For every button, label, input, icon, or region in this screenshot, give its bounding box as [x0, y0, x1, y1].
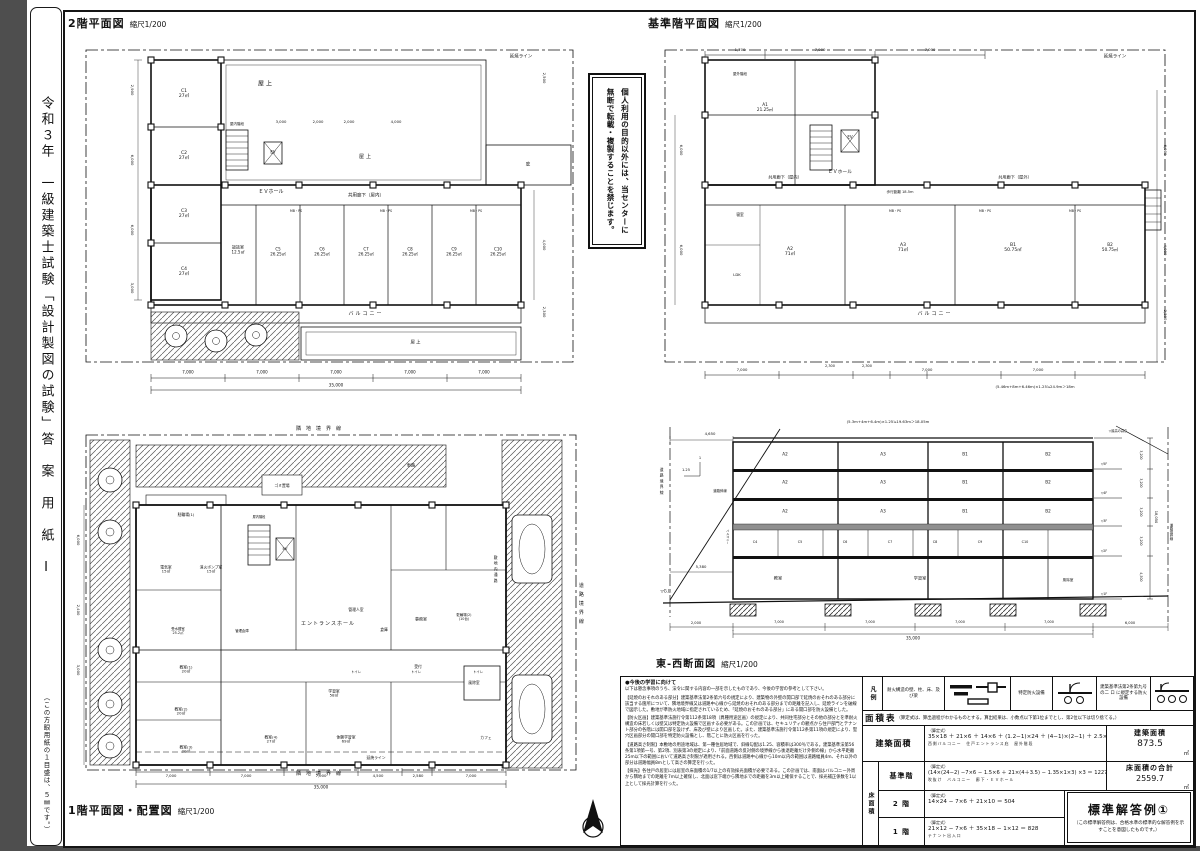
- drawing-label: 延焼ライン: [367, 756, 386, 760]
- section-scale: 縮尺1/200: [721, 660, 758, 669]
- drawing-label: 2,000: [344, 120, 355, 124]
- kijun-formula-annotation: 吹抜け バルコニー 廊下・ＥＶホール: [928, 777, 1103, 783]
- exam-answer-sheet: { "page": { "strip_title": "令和３年 一級建築士試験…: [0, 0, 1200, 851]
- drawing-label: MB・PS: [979, 210, 991, 214]
- drawing-label: 共用廊下（屋内）: [348, 193, 384, 198]
- drawing-label: 歩行距離 18.5m: [886, 190, 913, 194]
- drawing-label: 3,200: [1138, 536, 1142, 545]
- drawing-label: ▽最高の高さ: [1109, 430, 1127, 434]
- drawing-label: 教室: [774, 577, 782, 582]
- plan2f-title-text: 2階平面図: [68, 17, 125, 30]
- floor2-formula: 14×24 − 7×6 ＋ 21×10 ＝ 504: [928, 799, 1061, 806]
- drawing-label: 倉庫: [380, 628, 388, 632]
- drawing-label: 3,000: [276, 120, 287, 124]
- drawing-label: 6,000: [679, 145, 683, 156]
- drawing-label: B2: [1045, 481, 1051, 486]
- drawing-label: 庇: [526, 162, 531, 167]
- drawing-label: 屋内階段: [253, 516, 266, 520]
- drawing-label: ▽1F: [1101, 593, 1107, 597]
- notes-paragraph: 【延焼のおそれのある部分】建築基準法第2条第六号の規定により、建築物の外壁の開口…: [625, 696, 858, 714]
- drawing-label: 屋上: [411, 340, 422, 345]
- drawing-label: 6,000: [1125, 621, 1135, 625]
- drawing-label: エントランスホール: [301, 622, 355, 628]
- drawing-label: C10 26.25㎡: [490, 247, 505, 256]
- drawing-label: 教室(3) 20㎡: [180, 746, 193, 755]
- drawing-label: 7,000: [922, 368, 933, 372]
- drawing-label: A2: [782, 453, 788, 458]
- drawing-label: 7,000: [955, 621, 965, 625]
- drawing-label: 寝室: [736, 213, 744, 217]
- drawing-label: 道路境界線: [577, 583, 583, 628]
- floor-plan-1f-site: 隣地境界線隣地境界線道路境界線車路ゴミ置場駐輪場(1)電気室 15㎡消火ポンプ室…: [66, 420, 600, 798]
- drawing-label: バルコニー: [918, 312, 953, 318]
- kenchiku-result-unit: ㎡: [1183, 749, 1189, 757]
- drawing-label: トイレ: [473, 671, 483, 675]
- drawing-label: 事務室: [415, 618, 427, 623]
- drawing-label: 管理倉庫: [235, 630, 249, 634]
- drawing-label: ▽G.L.: [661, 590, 672, 595]
- drawing-label: 7,000: [256, 371, 267, 376]
- drawing-label: B2: [1045, 453, 1051, 458]
- legend-item2-text: 特定防火設備: [1018, 691, 1044, 697]
- floor-plan-standard-drawing: [645, 30, 1185, 408]
- drawing-label: C9: [978, 541, 983, 545]
- drawing-label: バルコニー: [349, 312, 384, 318]
- kenchiku-formula: 35×18 ＋ 21×6 ＋ 14×6 ＋ (1.2−1)×24 ＋ (4−1)…: [928, 734, 1103, 741]
- fire-shutter-icon: [1153, 681, 1191, 707]
- planstd-scale: 縮尺1/200: [725, 20, 762, 29]
- drawing-label: 屋上: [359, 155, 373, 161]
- planstd-title-text: 基準階平面図: [648, 17, 720, 30]
- drawing-label: 35,000: [314, 786, 329, 791]
- floor1-label: 1 階: [893, 827, 910, 837]
- row-label-1f: 1 階: [879, 818, 925, 845]
- drawing-label: B1: [962, 453, 968, 458]
- sheet-title: 令和３年 一級建築士試験「設計製図の試験」答 案 用 紙 Ⅰ: [37, 96, 56, 578]
- total-floor-area-cell: 床面積の合計 2559.7 ㎡: [1107, 762, 1193, 791]
- drawing-label: 4,000: [391, 120, 402, 124]
- legend-item-tokutei-symbol: [1053, 677, 1097, 711]
- drawing-label: 5,380: [696, 565, 707, 569]
- drawing-label: MB・PS: [290, 210, 302, 214]
- drawing-label: 2,300: [542, 307, 546, 318]
- drawing-label: 7,000: [774, 621, 784, 625]
- yuka-menseki-label-cell: 床面積: [863, 762, 879, 845]
- drawing-label: トイレ: [411, 671, 421, 675]
- drawing-label: 7,000: [737, 368, 748, 372]
- drawing-label: 4,650: [705, 432, 716, 436]
- drawing-label: 35,000: [329, 384, 344, 389]
- drawing-label: LDK: [733, 273, 741, 277]
- drawing-label: C6: [843, 541, 848, 545]
- drawing-label: 消火ポンプ室 15㎡: [200, 566, 223, 575]
- plan2f-scale: 縮尺1/200: [130, 20, 167, 29]
- grid-note: （この方眼用紙の１目盛は、５㎜です。）: [41, 694, 51, 833]
- drawing-label: 学習室 58㎡: [328, 690, 339, 699]
- drawing-label: C3 27㎡: [179, 209, 189, 219]
- drawing-label: 4,000: [1163, 245, 1167, 256]
- drawing-label: 談話室 12.5㎡: [232, 245, 245, 254]
- section-title-text: 東-西断面図: [656, 659, 716, 670]
- area-table-title: 面積表: [865, 712, 897, 724]
- sheet-title-strip: 令和３年 一級建築士試験「設計製図の試験」答 案 用 紙 Ⅰ （この方眼用紙の１…: [30, 7, 62, 846]
- drawing-label: 受付: [414, 665, 422, 669]
- drawing-label: MB・PS: [470, 210, 482, 214]
- drawing-label: 6,000: [76, 535, 80, 546]
- drawing-label: 受水槽室 25.2㎡: [171, 628, 185, 636]
- total-floor-area-value: 2559.7: [1136, 774, 1164, 783]
- drawing-label: 7,000: [166, 774, 177, 778]
- plan1f-title: 1階平面図・配置図縮尺1/200: [68, 799, 214, 818]
- drawing-label: 7,000: [1044, 621, 1054, 625]
- drawing-label: EV: [283, 547, 288, 551]
- drawing-label: A3: [880, 453, 886, 458]
- area-table-header: 面積表 （算定式は、算出過程がわかるものとする。算出結果は、小数点以下第1位まで…: [863, 711, 1193, 726]
- drawing-label: 6,000: [1163, 145, 1167, 156]
- drawing-label: 隣地境界線: [296, 427, 346, 433]
- drawing-label: 風除室: [468, 681, 479, 685]
- legend-item-fireproof-text: 耐火構造の壁、柱、床、及び梁: [883, 677, 945, 711]
- drawing-label: 18,050: [1154, 511, 1158, 524]
- drawing-label: 道路境界線: [1168, 524, 1172, 541]
- drawing-label: C8: [933, 541, 938, 545]
- north-arrow-icon: [575, 797, 611, 841]
- drawing-label: トイレ: [351, 671, 361, 675]
- fire-door-icon: [1056, 681, 1094, 707]
- plan1f-scale: 縮尺1/200: [178, 807, 215, 816]
- drawing-label: 7,000: [466, 774, 477, 778]
- drawing-label: 教室(1) 20㎡: [180, 666, 193, 675]
- drawing-label: 4,000: [542, 240, 546, 251]
- drawing-label: 屋内階段: [230, 122, 244, 126]
- drawing-label: 屋外階段: [733, 72, 747, 76]
- floor-plan-1f-drawing: [66, 420, 600, 798]
- drawing-label: 2,000: [691, 621, 701, 625]
- kijun-formula-cell: （算定式） (14×(24−2) −7×6 − 1.5×6 ＋ 21×(4＋3.…: [925, 762, 1107, 791]
- drawing-label: 道路境界線: [660, 468, 664, 497]
- drawing-label: ゴミ置場: [274, 484, 289, 488]
- drawing-label: 電気室 15㎡: [160, 566, 171, 575]
- kenchiku-result-value: 873.5: [1137, 739, 1163, 749]
- kenchiku-result-label: 建築面積: [1134, 728, 1166, 738]
- drawing-label: 教室(2) 20㎡: [175, 708, 188, 717]
- standard-answer-title: 標準解答例①: [1088, 801, 1170, 818]
- drawing-label: C7: [888, 541, 893, 545]
- drawing-label: A2: [782, 510, 788, 515]
- drawing-label: 7,000: [241, 774, 252, 778]
- floor1-formula-annotation: テナント出入口: [928, 833, 1061, 839]
- drawing-label: 体験学習室 69㎡: [337, 736, 356, 745]
- drawing-label: C9 26.25㎡: [446, 247, 461, 256]
- drawing-label: 7,000: [925, 48, 936, 52]
- floor2-label: 2 階: [893, 799, 910, 809]
- scan-edge-left: [0, 0, 27, 851]
- drawing-label: 教室(4) 27㎡: [265, 736, 278, 745]
- total-floor-area-label: 床面積の合計: [1126, 763, 1174, 773]
- drawing-label: 6,000: [130, 155, 134, 166]
- drawing-label: ▽3F: [1101, 520, 1107, 524]
- legend-item-bouka-text: 建築基準法第2条第九号の二 ロ に規定する防火設備: [1097, 677, 1151, 711]
- drawing-label: EV: [847, 136, 852, 141]
- planstd-title: 基準階平面図縮尺1/200: [648, 12, 762, 31]
- standard-answer-note: （この標準解答例は、合格水準の標準的な解答例を示すことを意図したものです。）: [1068, 821, 1190, 835]
- drawing-label: B1: [962, 481, 968, 486]
- legend-item-fireproof-symbol: [945, 677, 1011, 711]
- legend-label: 凡例: [868, 686, 877, 702]
- kenchiku-result-cell: 建築面積 873.5 ㎡: [1107, 726, 1193, 762]
- kenchiku-label: 建築面積: [876, 738, 912, 749]
- drawing-label: C4 27㎡: [179, 267, 189, 277]
- drawing-label: 7,000: [478, 371, 489, 376]
- drawing-label: 共用廊下（屋内）: [768, 176, 802, 181]
- section-title: 東-西断面図縮尺1/200: [656, 652, 758, 671]
- kenchiku-formula-cell: （算定式） 35×18 ＋ 21×6 ＋ 14×6 ＋ (1.2−1)×24 ＋…: [925, 726, 1107, 762]
- floor-plan-2f-drawing: [66, 30, 585, 408]
- drawing-label: A1 21.25㎡: [757, 103, 773, 113]
- kijun-formula: (14×(24−2) −7×6 − 1.5×6 ＋ 21×(4＋3.5) − 1…: [928, 770, 1103, 777]
- drawing-label: 学習室: [914, 577, 927, 582]
- drawing-label: 3,200: [1138, 507, 1142, 516]
- floor2-formula-cell: （算定式） 14×24 − 7×6 ＋ 21×10 ＝ 504: [925, 791, 1065, 818]
- drawing-label: A2 71㎡: [785, 247, 795, 257]
- drawing-label: C5 26.25㎡: [270, 247, 285, 256]
- plan1f-title-text: 1階平面図・配置図: [68, 804, 173, 817]
- drawing-label: (5.3m+4m+6.4m)×1.25≒19.63m＞18.05m: [847, 420, 930, 424]
- legend-item1-text: 耐火構造の壁、柱、床、及び梁: [885, 688, 942, 699]
- study-notes: ●今後の学習に向けて 以下は懸念事項のうち、法令に関する内容の一部を示したもので…: [621, 677, 863, 845]
- fireproof-wall-column-icon: [948, 681, 1008, 707]
- drawing-label: ▽4F: [1101, 492, 1107, 496]
- drawing-label: C1 27㎡: [179, 89, 189, 99]
- drawing-label: 延焼ライン: [1104, 54, 1127, 59]
- drawing-label: A3: [880, 510, 886, 515]
- notes-paragraph: 【道路高さ制限】本敷地の用途地域は、第一種住居地域で、斜線勾配は1.25、容積率…: [625, 743, 858, 767]
- drawing-label: C6 26.25㎡: [314, 247, 329, 256]
- drawing-label: 2,500: [542, 73, 546, 84]
- drawing-label: MB・PS: [1069, 210, 1081, 214]
- copyright-notice-inner: 個人利用の目的以外には、当センターに 無断で転載・複製することを禁じます。: [592, 77, 642, 245]
- drawing-label: カフェ: [480, 736, 491, 740]
- drawing-label: 3,000: [76, 665, 80, 676]
- drawing-label: 7,000: [182, 371, 193, 376]
- notes-intro: 以下は懸念事項のうち、法令に関する内容の一部を示したものであり、今後の学習の参考…: [625, 687, 858, 693]
- drawing-label: 道路斜線: [713, 490, 727, 494]
- drawing-label: 駐輪場(1): [178, 513, 195, 517]
- drawing-label: B2 50.75㎡: [1102, 243, 1118, 253]
- drawing-label: 風除室: [1063, 578, 1074, 582]
- drawing-label: 駐輪場(2) (10台): [457, 614, 472, 622]
- drawing-label: 1,700: [735, 48, 746, 52]
- drawing-label: 3,200: [1138, 478, 1142, 487]
- drawing-label: 3,000: [130, 283, 134, 294]
- drawing-label: 7,000: [865, 621, 875, 625]
- notice-line1: 個人利用の目的以外には、当センターに: [617, 88, 631, 234]
- drawing-label: B1 50.75㎡: [1004, 243, 1021, 253]
- drawing-label: ▽2F: [1101, 550, 1107, 554]
- drawing-label: 7,000: [330, 371, 341, 376]
- legend-item-bouka-symbol: [1151, 677, 1193, 711]
- drawing-label: (5.46m+8m+6.46m)×1.25≒24.9m＞18m: [995, 385, 1074, 389]
- drawing-label: 屋上: [258, 82, 274, 89]
- floor-plan-2f: 延焼ライン屋上屋上庇EVＥＶホール屋内階段C1 27㎡C2 27㎡C3 27㎡C…: [66, 30, 585, 408]
- drawing-label: 6,000: [130, 225, 134, 236]
- row-label-kenchiku: 建築面積: [863, 726, 925, 762]
- floor-plan-standard: 延焼ラインA1 21.25㎡屋外階段EVＥＶホール共用廊下（屋内）共用廊下（屋外…: [645, 30, 1185, 408]
- row-label-kijun: 基準階: [879, 762, 925, 791]
- drawing-label: 7,000: [316, 774, 327, 778]
- drawing-label: A3: [880, 481, 886, 486]
- drawing-label: 1.25: [682, 468, 690, 472]
- drawing-label: EV: [270, 151, 275, 156]
- total-floor-area-unit: ㎡: [1183, 783, 1189, 791]
- drawing-label: 6,000: [679, 245, 683, 256]
- drawing-label: 2,400: [76, 605, 80, 616]
- notes-paragraph: 【防火区画】建築基準法施行令第112条第18項（異種用途区画）の規定により、共同…: [625, 716, 858, 740]
- drawing-label: 車路: [407, 464, 415, 469]
- area-table-block: ●今後の学習に向けて 以下は懸念事項のうち、法令に関する内容の一部を示したもので…: [620, 676, 1194, 846]
- drawing-label: C4: [753, 541, 758, 545]
- drawing-label: バルコニー: [725, 530, 728, 545]
- row-label-2f: 2 階: [879, 791, 925, 818]
- drawing-label: 3,200: [1138, 450, 1142, 459]
- floor1-formula-cell: （算定式） 21×12 − 7×6 ＋ 35×18 − 1×12 ＝ 828 テ…: [925, 818, 1065, 845]
- drawing-label: C8 26.25㎡: [402, 247, 417, 256]
- drawing-label: 管理人室: [348, 608, 363, 612]
- drawing-label: 7,000: [815, 48, 826, 52]
- drawing-label: 共用廊下（屋外）: [998, 176, 1032, 181]
- drawing-label: B2: [1045, 510, 1051, 515]
- drawing-label: C5: [798, 541, 803, 545]
- area-table-title-note: （算定式は、算出過程がわかるものとする。算出結果は、小数点以下第1位までとし、第…: [897, 715, 1120, 721]
- drawing-label: 延焼ライン: [510, 54, 533, 59]
- drawing-label: 2,580: [413, 774, 424, 778]
- drawing-label: A2: [782, 481, 788, 486]
- drawing-label: C2 27㎡: [179, 151, 189, 161]
- drawing-label: MB・PS: [380, 210, 392, 214]
- drawing-label: ▽5F: [1101, 463, 1107, 467]
- kijun-label: 基準階: [890, 771, 914, 781]
- drawing-label: ＥＶホール: [828, 170, 852, 176]
- drawing-label: 2,300: [825, 364, 835, 368]
- drawing-label: 35,000: [906, 637, 920, 642]
- drawing-label: 敷地内通路: [494, 556, 498, 585]
- drawing-label: ＥＶホール: [258, 190, 283, 196]
- floor1-formula: 21×12 − 7×6 ＋ 35×18 − 1×12 ＝ 828: [928, 826, 1061, 833]
- drawing-label: 1: [699, 456, 701, 460]
- plan2f-title: 2階平面図縮尺1/200: [68, 12, 166, 31]
- standard-answer-badge: 標準解答例① （この標準解答例は、合格水準の標準的な解答例を示すことを意図したも…: [1067, 792, 1191, 843]
- notes-paragraph: 【採光】各住戸の居室には居室の床面積の1/7以上の有効採光面積が必要である。この…: [625, 769, 858, 787]
- north-arrow: [575, 797, 611, 841]
- drawing-label: B1: [962, 510, 968, 515]
- legend-label-cell: 凡例: [863, 677, 883, 711]
- kenchiku-formula-annotation: 西側バルコニー 住戸エントランス庇 屋外階段: [928, 741, 1103, 747]
- drawing-label: C10: [1022, 541, 1029, 545]
- notice-line2: 無断で転載・複製することを禁じます。: [603, 88, 617, 234]
- drawing-label: 7,000: [1033, 368, 1044, 372]
- drawing-label: 7,000: [404, 371, 415, 376]
- drawing-label: 2,000: [313, 120, 324, 124]
- drawing-label: 4,500: [373, 774, 384, 778]
- drawing-label: 4,500: [1138, 572, 1142, 581]
- drawing-label: 2,900: [130, 85, 134, 96]
- copyright-notice-box: 個人利用の目的以外には、当センターに 無断で転載・複製することを禁じます。: [588, 73, 646, 249]
- legend-item-tokutei-text: 特定防火設備: [1011, 677, 1053, 711]
- drawing-label: A3 71㎡: [898, 243, 908, 253]
- legend-item3-text: 建築基準法第2条第九号の二 ロ に規定する防火設備: [1099, 685, 1148, 702]
- drawing-label: MB・PS: [889, 210, 901, 214]
- drawing-label: 2,300: [1163, 310, 1167, 321]
- drawing-label: 2,300: [862, 364, 872, 368]
- yuka-menseki-label: 床面積: [866, 792, 875, 816]
- section-drawing: (5.3m+4m+6.4m)×1.25≒19.63m＞18.05m道路境界線道路…: [648, 412, 1175, 650]
- drawing-label: C7 26.25㎡: [358, 247, 373, 256]
